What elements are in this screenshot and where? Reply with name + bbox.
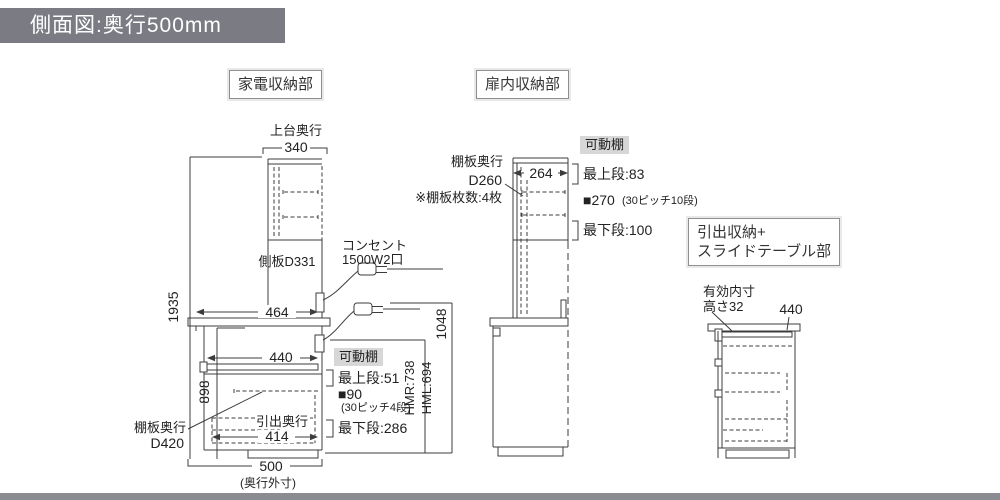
footer-bar bbox=[0, 493, 1000, 500]
section-label-drawer-line1: 引出収納+ bbox=[697, 223, 831, 242]
top-depth-caption: 上台奥行 bbox=[270, 123, 322, 138]
counter-depth-value: 464 bbox=[265, 304, 289, 320]
page: 側面図:奥行500mm bbox=[0, 0, 1000, 500]
left-unit-diagram: 上台奥行 340 側板D331 1935 898 464 440 コンセント 1… bbox=[134, 123, 452, 490]
middle-shelf-bottom-step: 最下段:100 bbox=[583, 222, 652, 238]
left-counter-top bbox=[188, 318, 330, 331]
section-label-drawer-line2: スライドテーブル部 bbox=[697, 242, 831, 261]
middle-shelf-depth-value: D260 bbox=[469, 172, 503, 188]
right-unit-diagram: 有効内寸 高さ32 440 bbox=[703, 284, 803, 458]
shelf-pitch-note: (30ピッチ4段) bbox=[341, 400, 411, 414]
middle-shelf-count-note: ※棚板枚数:4枚 bbox=[415, 190, 502, 205]
shelf-bottom-step: 最下段:286 bbox=[338, 420, 407, 436]
power-plug-icon-2 bbox=[323, 303, 420, 340]
outer-depth-note: (奥行外寸) bbox=[240, 476, 296, 490]
hmr-value: HMR:738 bbox=[402, 361, 417, 416]
section-label-door: 扉内収納部 bbox=[476, 70, 569, 99]
hml-value: HML:694 bbox=[419, 362, 434, 415]
middle-shelf-depth-caption: 棚板奥行 bbox=[451, 154, 503, 169]
outlet-caption: コンセント bbox=[342, 238, 407, 253]
movable-shelf-tag-left: 可動棚 bbox=[334, 348, 383, 366]
right-inner-height: 高さ32 bbox=[703, 299, 743, 314]
base-height-value: 898 bbox=[196, 380, 212, 404]
counter-top-height-value: 1048 bbox=[433, 308, 449, 339]
movable-shelf-tag-middle: 可動棚 bbox=[580, 136, 629, 154]
shelf-pitch: ■90 bbox=[338, 386, 362, 402]
right-table-width-value: 440 bbox=[779, 301, 803, 317]
top-depth-value: 340 bbox=[284, 139, 308, 155]
middle-unit-diagram: 264 棚板奥行 D260 ※棚板枚数:4枚 最上段:83 ■270 (30ピッ… bbox=[415, 154, 698, 456]
right-inner-caption: 有効内寸 bbox=[703, 284, 755, 299]
shelf-top-step: 最上段:51 bbox=[338, 370, 400, 386]
shelf-depth-caption: 棚板奥行 bbox=[134, 420, 186, 435]
open-space-width-value: 440 bbox=[269, 349, 293, 365]
middle-shelf-top-step: 最上段:83 bbox=[583, 166, 645, 182]
middle-shelf-pitch: ■270 bbox=[583, 192, 615, 208]
section-label-appliance: 家電収納部 bbox=[229, 70, 322, 99]
middle-inner-depth-value: 264 bbox=[529, 165, 553, 181]
outlet-spec: 1500W2口 bbox=[342, 252, 403, 267]
drawer-depth-value: 414 bbox=[265, 428, 289, 444]
power-plug-icon bbox=[323, 263, 443, 300]
left-upper-cabinet-outline bbox=[268, 159, 322, 318]
outer-depth-value: 500 bbox=[259, 458, 283, 474]
total-height-value: 1935 bbox=[165, 291, 181, 322]
section-label-drawer: 引出収納+ スライドテーブル部 bbox=[688, 218, 840, 266]
right-cabinet-outline bbox=[708, 324, 800, 458]
drawer-depth-caption: 引出奥行 bbox=[256, 414, 308, 429]
shelf-depth-value: D420 bbox=[151, 435, 185, 451]
middle-shelf-pitch-note: (30ピッチ10段) bbox=[622, 193, 698, 207]
side-panel-label: 側板D331 bbox=[258, 254, 315, 269]
